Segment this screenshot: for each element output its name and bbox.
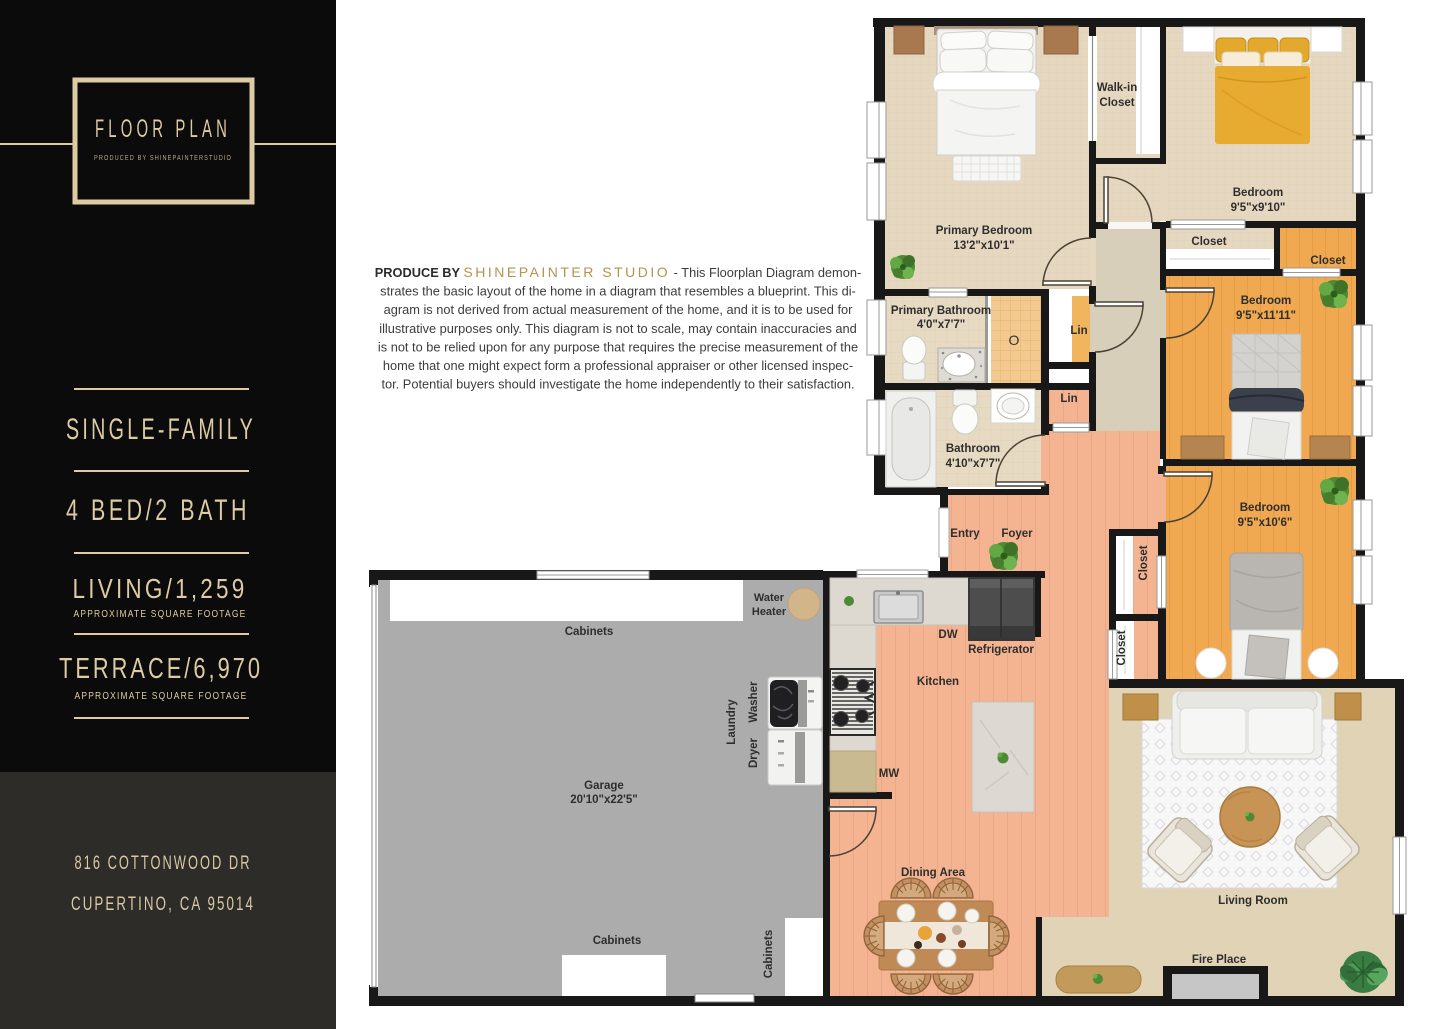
svg-text:Bedroom: Bedroom (1241, 295, 1291, 307)
svg-text:TERRACE/6,970: TERRACE/6,970 (59, 653, 263, 685)
svg-text:PRODUCED BY SHINEPAINTERSTUDIO: PRODUCED BY SHINEPAINTERSTUDIO (94, 153, 232, 162)
svg-text:LIVING/1,259: LIVING/1,259 (73, 573, 248, 604)
svg-text:APPROXIMATE SQUARE FOOTAGE: APPROXIMATE SQUARE FOOTAGE (74, 608, 247, 620)
svg-text:Primary Bathroom: Primary Bathroom (891, 305, 991, 317)
svg-text:CUPERTINO, CA 95014: CUPERTINO, CA 95014 (71, 894, 255, 915)
svg-text:Cabinets: Cabinets (565, 626, 614, 638)
svg-text:Closet: Closet (1310, 255, 1345, 267)
svg-text:DW: DW (938, 629, 957, 641)
svg-text:Fire Place: Fire Place (1192, 954, 1246, 966)
svg-text:Bathroom: Bathroom (946, 443, 1000, 455)
svg-text:agram is not derived from actu: agram is not derived from actual measure… (384, 302, 853, 317)
svg-text:Kitchen: Kitchen (917, 676, 959, 688)
svg-text:Entry: Entry (950, 528, 980, 540)
svg-text:Washer: Washer (748, 681, 760, 723)
svg-text:is not to be relied upon for a: is not to be relied upon for any purpose… (378, 339, 858, 354)
svg-text:Cabinets: Cabinets (593, 935, 642, 947)
svg-text:9'5"x9'10": 9'5"x9'10" (1231, 202, 1286, 214)
svg-text:Garage: Garage (584, 780, 624, 792)
svg-text:Laundry: Laundry (726, 699, 738, 745)
svg-text:Lin: Lin (1060, 393, 1077, 405)
svg-text:13'2"x10'1": 13'2"x10'1" (953, 240, 1014, 252)
svg-text:Dining Area: Dining Area (901, 867, 966, 879)
svg-text:Closet: Closet (1138, 545, 1150, 580)
svg-text:Bedroom: Bedroom (1240, 502, 1290, 514)
svg-text:Cabinets: Cabinets (763, 930, 775, 979)
svg-text:Bedroom: Bedroom (1233, 187, 1283, 199)
svg-text:20'10"x22'5": 20'10"x22'5" (570, 794, 638, 806)
svg-text:strates the basic layout of th: strates the basic layout of the home in … (380, 284, 856, 299)
svg-text:4'0"x7'7": 4'0"x7'7" (917, 319, 965, 331)
svg-text:SINGLE-FAMILY: SINGLE-FAMILY (66, 413, 256, 446)
svg-text:tor. Potential buyers should i: tor. Potential buyers should investigate… (381, 377, 854, 392)
svg-text:Water: Water (754, 592, 785, 604)
svg-text:O: O (1009, 332, 1020, 348)
svg-text:Closet: Closet (1116, 630, 1128, 665)
svg-text:Primary Bedroom: Primary Bedroom (936, 225, 1033, 237)
svg-text:MW: MW (879, 768, 900, 780)
svg-text:Closet: Closet (1191, 236, 1226, 248)
svg-text:4 BED/2 BATH: 4 BED/2 BATH (66, 494, 250, 527)
svg-text:Heater: Heater (752, 606, 787, 618)
svg-text:Foyer: Foyer (1001, 528, 1033, 540)
svg-text:816 COTTONWOOD DR: 816 COTTONWOOD DR (75, 853, 252, 874)
svg-text:illustrative purposes only. Th: illustrative purposes only. This diagram… (379, 321, 857, 336)
svg-text:Dryer: Dryer (748, 737, 760, 768)
svg-text:FLOOR PLAN: FLOOR PLAN (95, 115, 231, 143)
svg-text:Closet: Closet (1099, 97, 1134, 109)
svg-text:Refrigerator: Refrigerator (968, 644, 1034, 656)
svg-text:home that one might expect for: home that one might expect form a profes… (383, 358, 853, 373)
svg-text:9'5"x10'6": 9'5"x10'6" (1238, 517, 1293, 529)
svg-text:4'10"x7'7": 4'10"x7'7" (946, 458, 1001, 470)
svg-text:Walk-in: Walk-in (1097, 82, 1137, 94)
svg-text:9'5"x11'11": 9'5"x11'11" (1236, 310, 1296, 322)
svg-text:PRODUCE BY SHINEPAINTER STUDIO: PRODUCE BY SHINEPAINTER STUDIO - This Fl… (375, 264, 861, 280)
svg-text:Lin: Lin (1070, 325, 1087, 337)
svg-text:Living Room: Living Room (1218, 895, 1288, 907)
svg-text:APPROXIMATE SQUARE FOOTAGE: APPROXIMATE SQUARE FOOTAGE (75, 690, 248, 702)
